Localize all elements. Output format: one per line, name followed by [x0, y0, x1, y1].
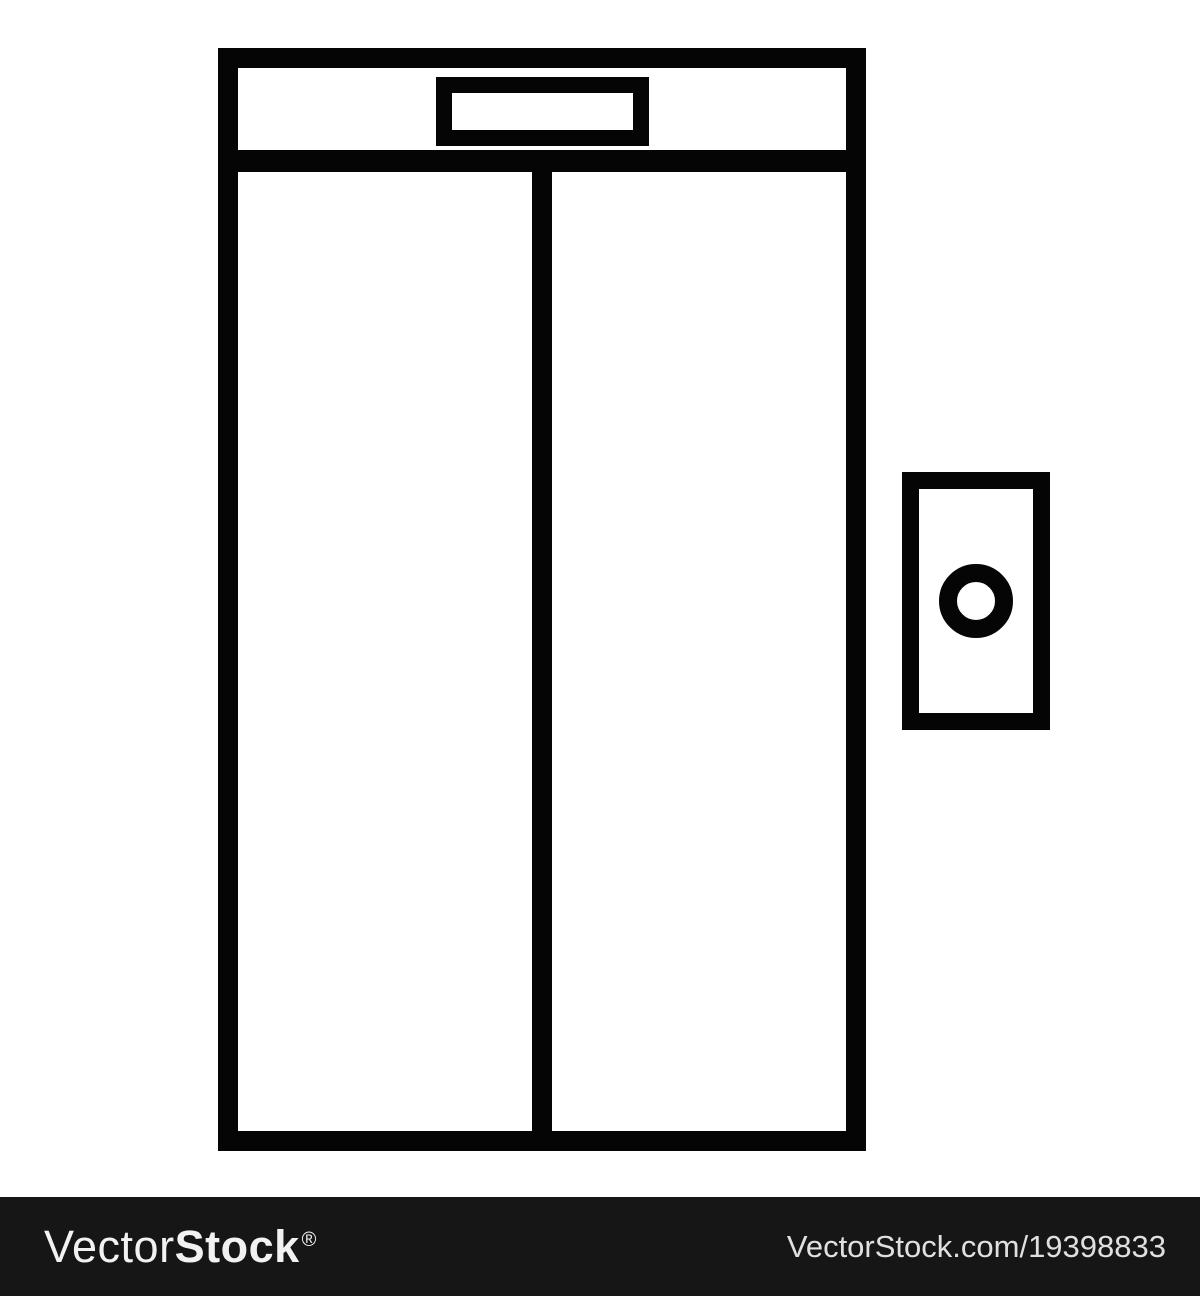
- call-button-panel: [902, 472, 1050, 730]
- logo-vector-text: Vector: [44, 1221, 175, 1272]
- floor-indicator-display: [436, 77, 649, 146]
- left-door: [238, 172, 532, 1131]
- transom-divider: [238, 150, 846, 172]
- vectorstock-logo: VectorStock®: [44, 1224, 317, 1269]
- door-gap: [532, 172, 552, 1131]
- right-door: [552, 172, 846, 1131]
- elevator-frame: [218, 48, 866, 1151]
- call-button-icon: [939, 564, 1013, 638]
- registered-mark-icon: ®: [302, 1229, 317, 1251]
- logo-stock-text: Stock: [175, 1221, 300, 1272]
- transom-panel: [238, 68, 846, 150]
- watermark-credit: VectorStock.com/19398833: [787, 1229, 1166, 1265]
- elevator-doors: [238, 172, 846, 1131]
- watermark-bar: VectorStock® VectorStock.com/19398833: [0, 1197, 1200, 1296]
- stock-image-canvas: VectorStock® VectorStock.com/19398833: [0, 0, 1200, 1296]
